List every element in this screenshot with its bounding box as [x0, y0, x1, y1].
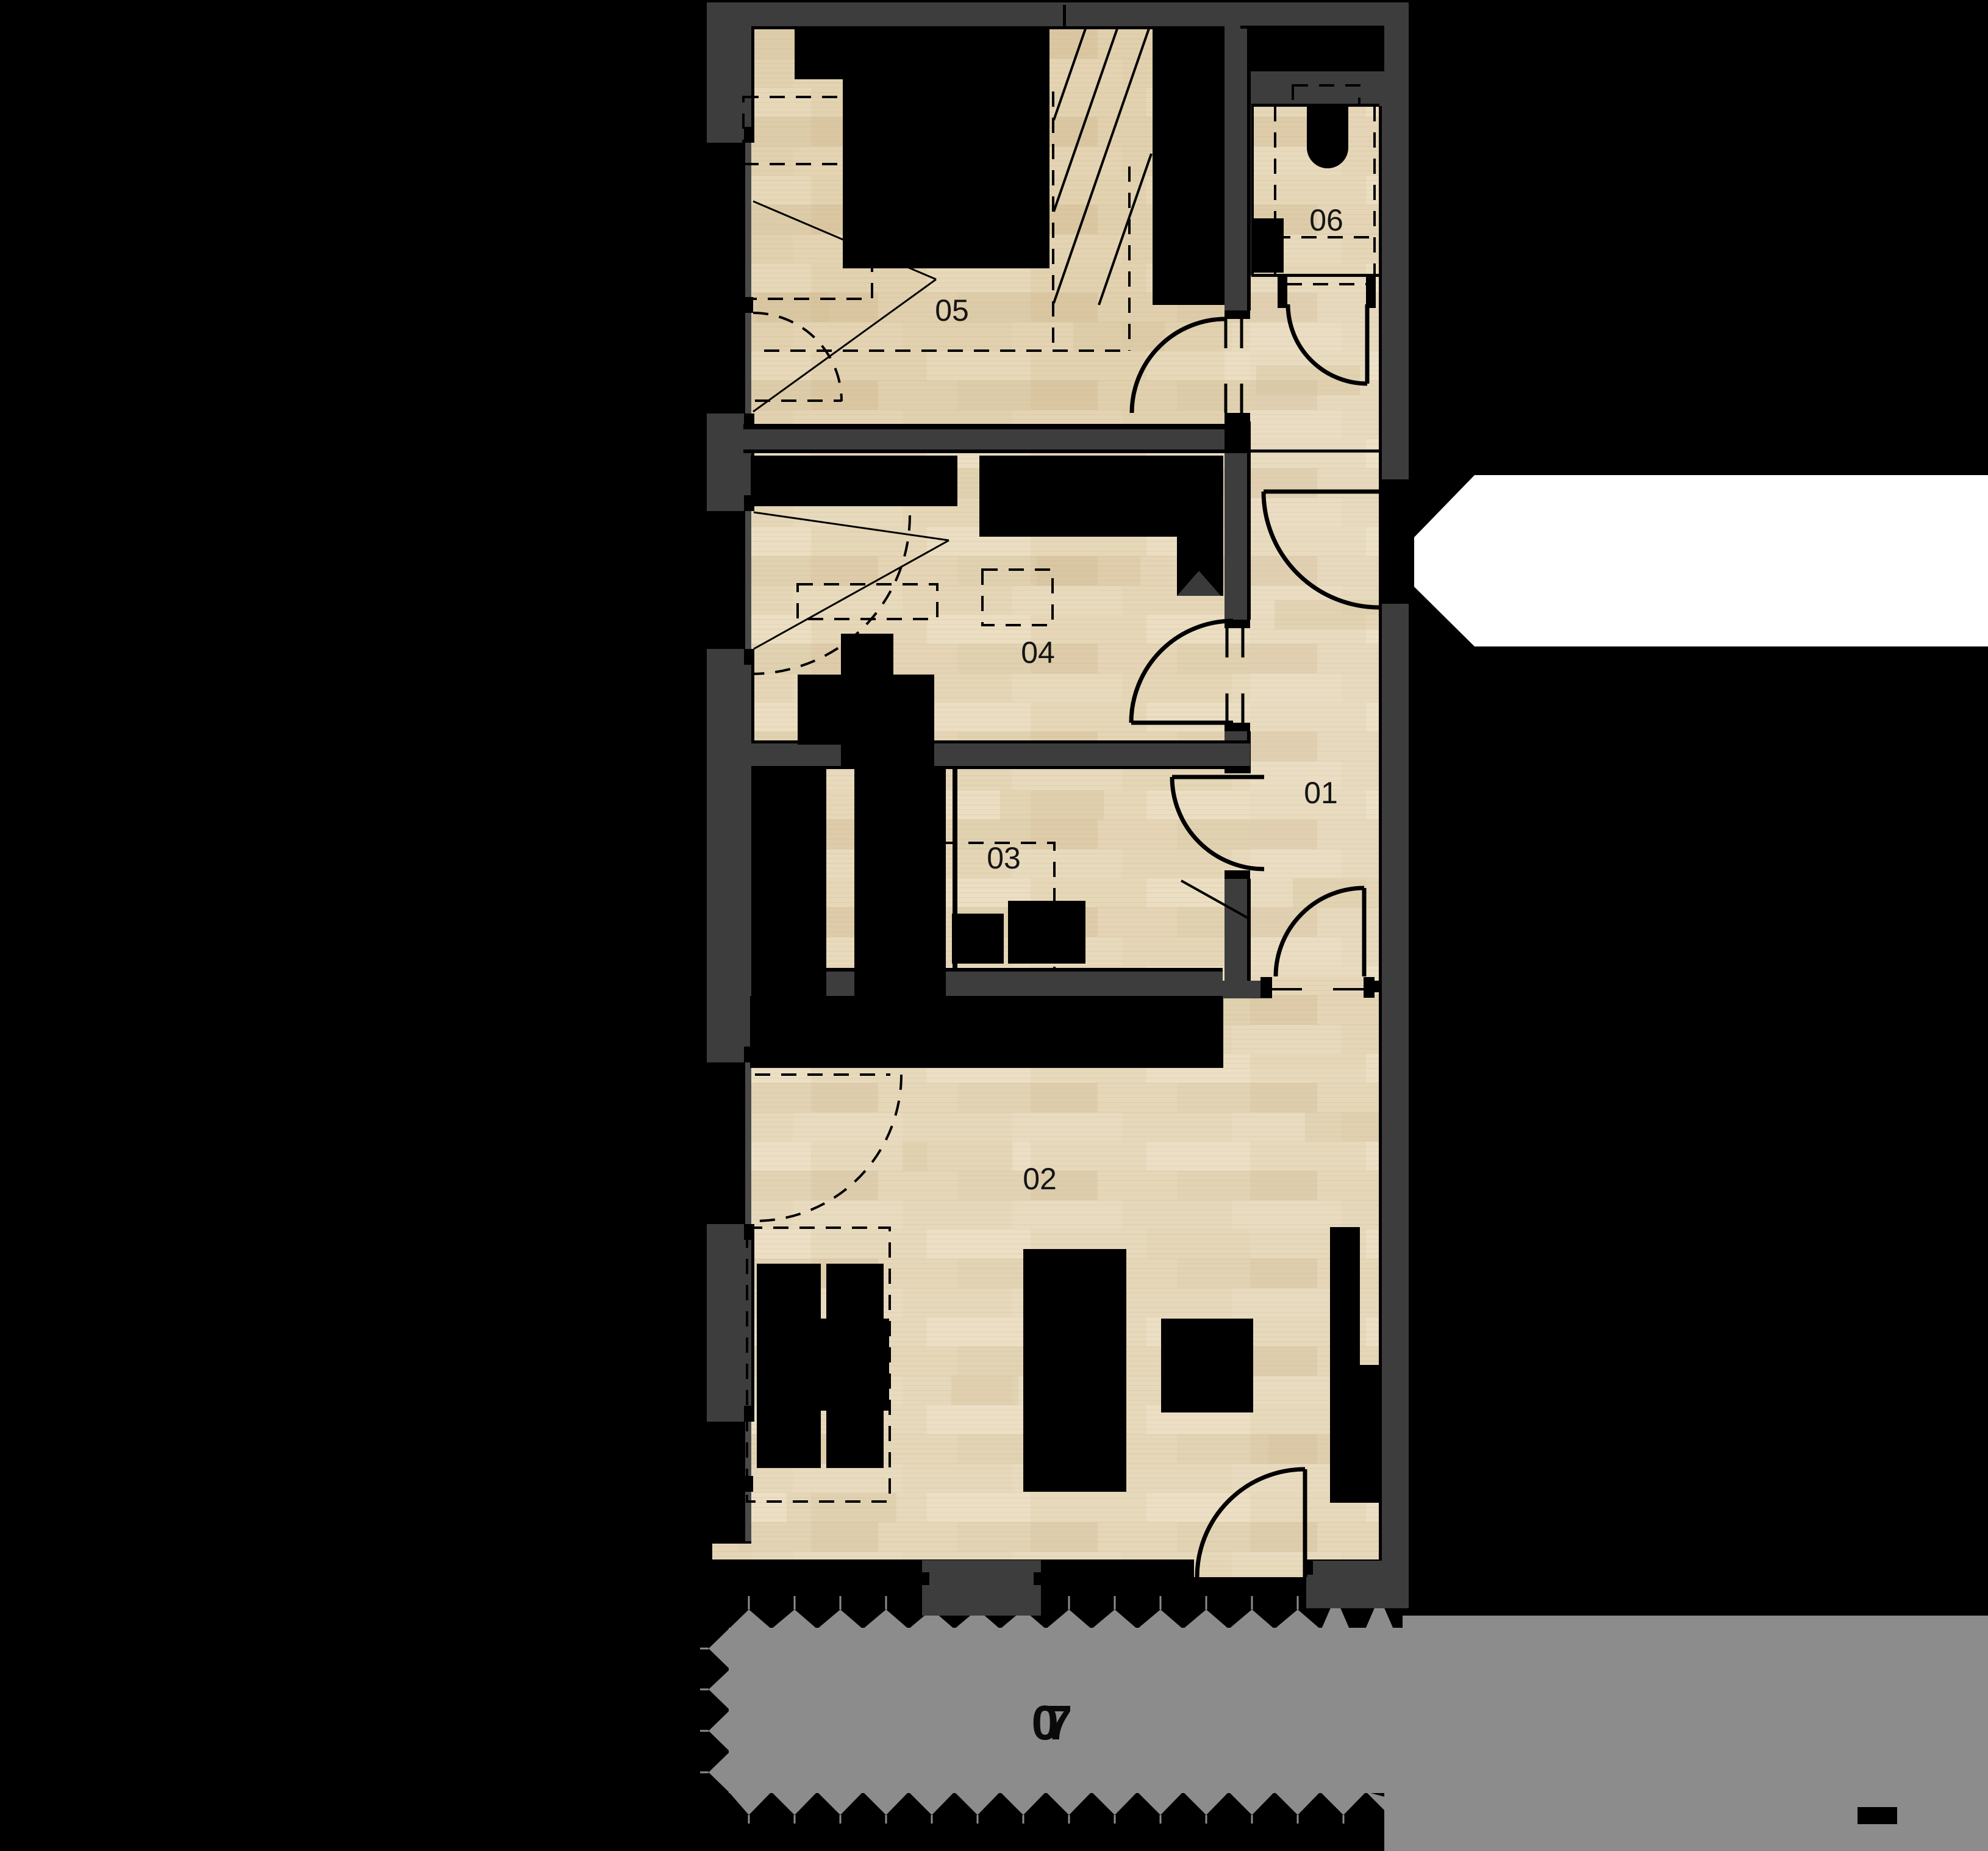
- svg-text:03: 03: [987, 841, 1021, 875]
- svg-text:01: 01: [1304, 776, 1338, 810]
- svg-text:04: 04: [1021, 635, 1055, 670]
- svg-text:02: 02: [1023, 1162, 1057, 1196]
- svg-text:05: 05: [935, 293, 969, 328]
- svg-text:06: 06: [1309, 203, 1343, 237]
